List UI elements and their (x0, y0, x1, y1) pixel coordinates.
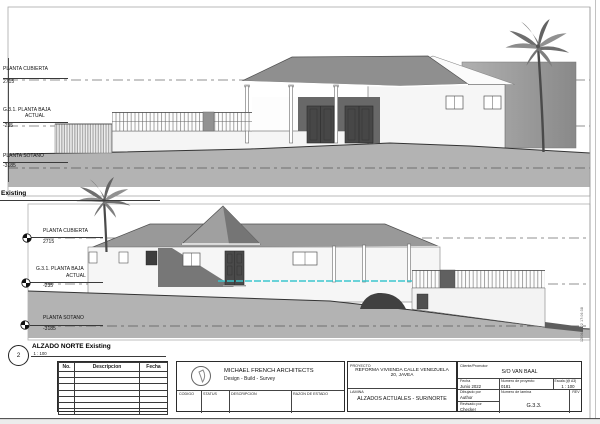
north-elevation-title: ALZADO NORTE Existing (32, 343, 111, 350)
date-label: Fecha (460, 379, 470, 383)
window (484, 96, 501, 109)
level-label: PLANTA SOTANO (43, 316, 84, 322)
level-value: 2715 (43, 240, 54, 246)
garden-door (417, 294, 428, 309)
sheet-no-label: Numero de lamina (501, 390, 531, 394)
railing-fence (412, 270, 545, 288)
scale-label: Escala (@ A3) (555, 379, 577, 383)
south-elevation-view (8, 7, 590, 196)
level-underline (30, 282, 103, 283)
level-value: -235 (43, 284, 53, 290)
sheet-no-value: G.3.3. (499, 403, 569, 409)
level-underline (30, 325, 103, 326)
level-label: PLANTA CUBIERTA (3, 67, 48, 73)
client-name: S/O VAN BAAL (458, 369, 581, 375)
view-number: 2 (17, 352, 21, 359)
level-underline (31, 237, 103, 238)
rev-col-fecha: Fecha (140, 363, 168, 372)
level-label: ACTUAL (25, 114, 45, 120)
level-datum-icon (21, 278, 31, 288)
status-label: STATUS (203, 392, 217, 396)
level-label: PLANTA CUBIERTA (43, 229, 88, 235)
checked-value: Checker (460, 407, 476, 412)
level-datum-icon (20, 320, 30, 330)
architect-name: MICHAEL FRENCH ARCHITECTS (224, 368, 314, 374)
level-datum-icon (22, 233, 32, 243)
razon-label: RAZON DE ESTADO (293, 392, 328, 396)
window (446, 96, 463, 109)
level-label: G.3.1. PLANTA BAJA (36, 267, 84, 273)
rev-label: REV (569, 390, 583, 394)
info-block: Cliente/Promotor S/O VAN BAAL Fecha Juni… (457, 361, 582, 412)
proyecto-label: PROYECTO (350, 364, 371, 368)
level-value: 2715 (3, 80, 14, 86)
scale-value: 1 : 100 (553, 384, 583, 389)
client-label: Cliente/Promotor (460, 364, 488, 368)
level-value: -3185 (3, 164, 16, 170)
shuttered-window (146, 251, 157, 265)
rev-row (59, 409, 168, 415)
drawing-sheet: PLANTA CUBIERTA 2715 G.3.1. PLANTA BAJA … (0, 0, 600, 424)
south-elevation-title: Existing (1, 190, 26, 197)
title-underline (31, 356, 166, 357)
project-block: PROYECTO REFORMA VIVIENDA CALLE VENEZUEL… (347, 361, 457, 412)
architect-block: MICHAEL FRENCH ARCHITECTS Design - Build… (176, 361, 345, 412)
revision-table: No. Descripcion Fecha (57, 361, 168, 412)
window (183, 253, 200, 266)
view-number-badge: 2 (8, 345, 29, 366)
drawn-value: Author (460, 395, 473, 400)
window (293, 252, 317, 265)
rev-col-no: No. (59, 363, 75, 372)
title-underline (0, 200, 160, 201)
level-value: -3185 (43, 327, 56, 333)
main-roof (242, 56, 468, 87)
level-value: -235 (3, 124, 13, 130)
descripcion-label: DESCRIPCION (231, 392, 257, 396)
drawn-label: Dibujado por (460, 390, 481, 394)
architect-logo (191, 366, 211, 386)
railing-fence (112, 112, 252, 131)
sheet-name: ALZADOS ACTUALES - SUR/NORTE (348, 396, 456, 402)
lamina-label: LAMINA (350, 390, 364, 394)
main-roof (88, 224, 440, 249)
codigo-label: CODIGO (179, 392, 194, 396)
level-label: PLANTA SOTANO (3, 154, 44, 160)
window (119, 252, 128, 263)
entry-door (345, 106, 373, 143)
project-name: REFORMA VIVIENDA CALLE VENEZUELA 20, JAV… (353, 368, 451, 378)
date-value: Junio 2022 (460, 384, 481, 389)
architect-tagline: Design - Build - Survey (224, 377, 275, 383)
plot-timestamp: 12/06/2022 17:06:38 (580, 296, 592, 342)
level-label: ACTUAL (66, 274, 86, 280)
project-no-value: 0181 (501, 384, 511, 389)
door-step (223, 285, 246, 286)
project-no-label: Numero de proyecto (501, 379, 534, 383)
window (89, 252, 97, 263)
checked-label: Revisado por (460, 402, 482, 406)
picket-fence (55, 124, 112, 153)
entry-door (307, 106, 334, 143)
north-elevation-view (28, 177, 590, 340)
rev-col-desc: Descripcion (75, 363, 140, 372)
